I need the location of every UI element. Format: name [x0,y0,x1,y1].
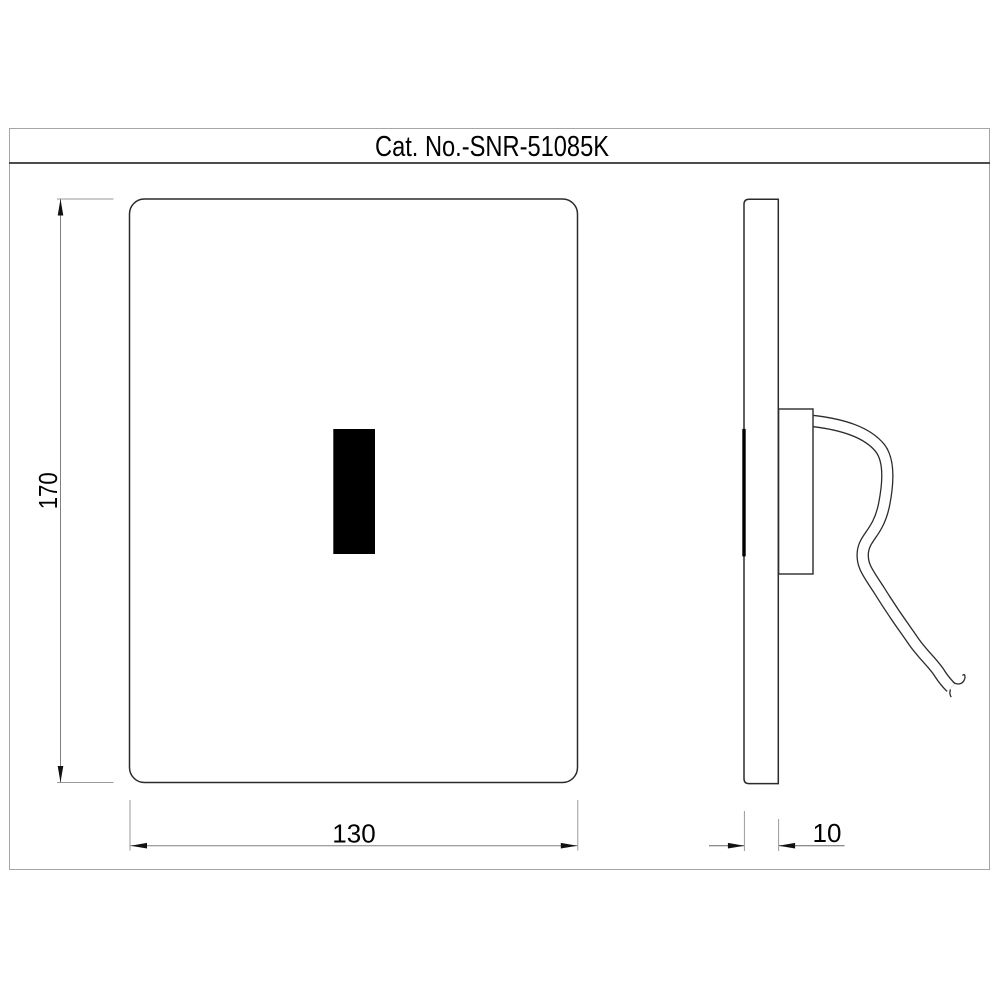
svg-text:170: 170 [33,472,63,509]
svg-text:130: 130 [332,818,375,848]
svg-text:Cat. No.-SNR-51085K: Cat. No.-SNR-51085K [375,131,609,163]
svg-text:10: 10 [813,818,842,848]
